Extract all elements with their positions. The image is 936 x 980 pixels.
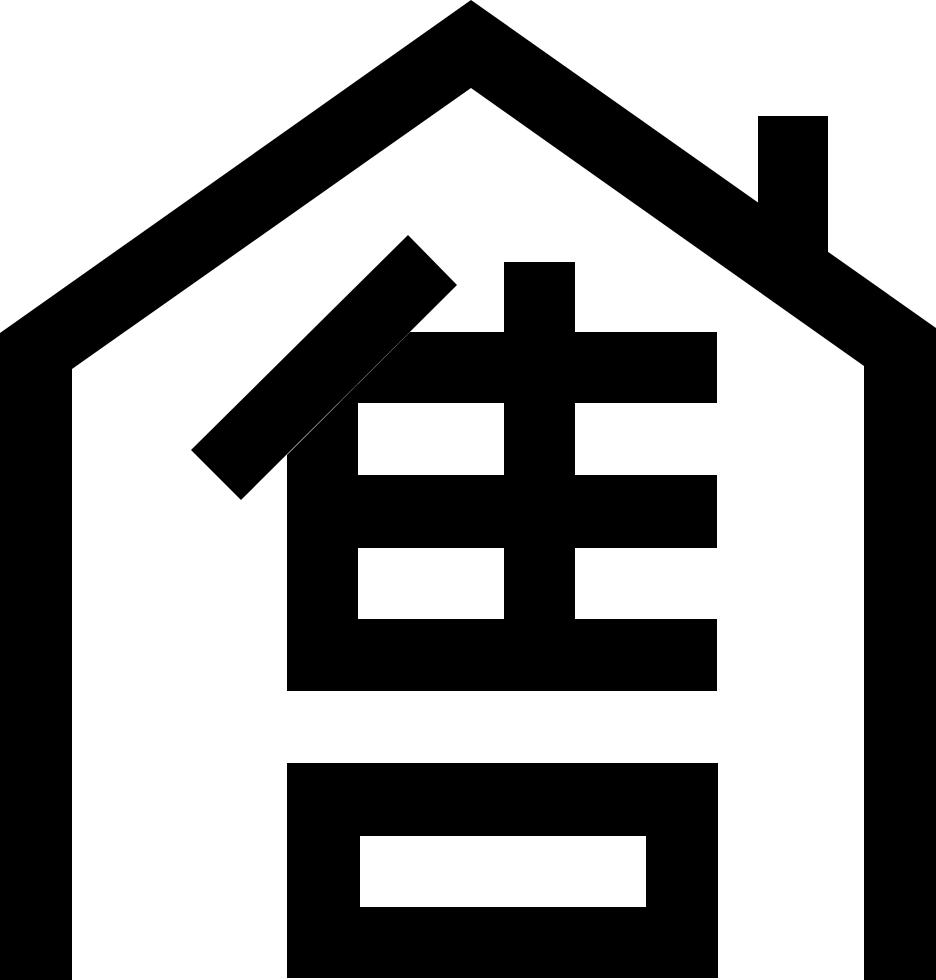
char-horizontal-stroke-3: [358, 619, 717, 691]
char-horizontal-stroke-2: [358, 475, 717, 548]
char-mouth-box-hole: [360, 836, 646, 907]
icon-svg: [0, 0, 936, 980]
chimney: [758, 116, 828, 290]
house-for-sale-icon: [0, 0, 936, 980]
